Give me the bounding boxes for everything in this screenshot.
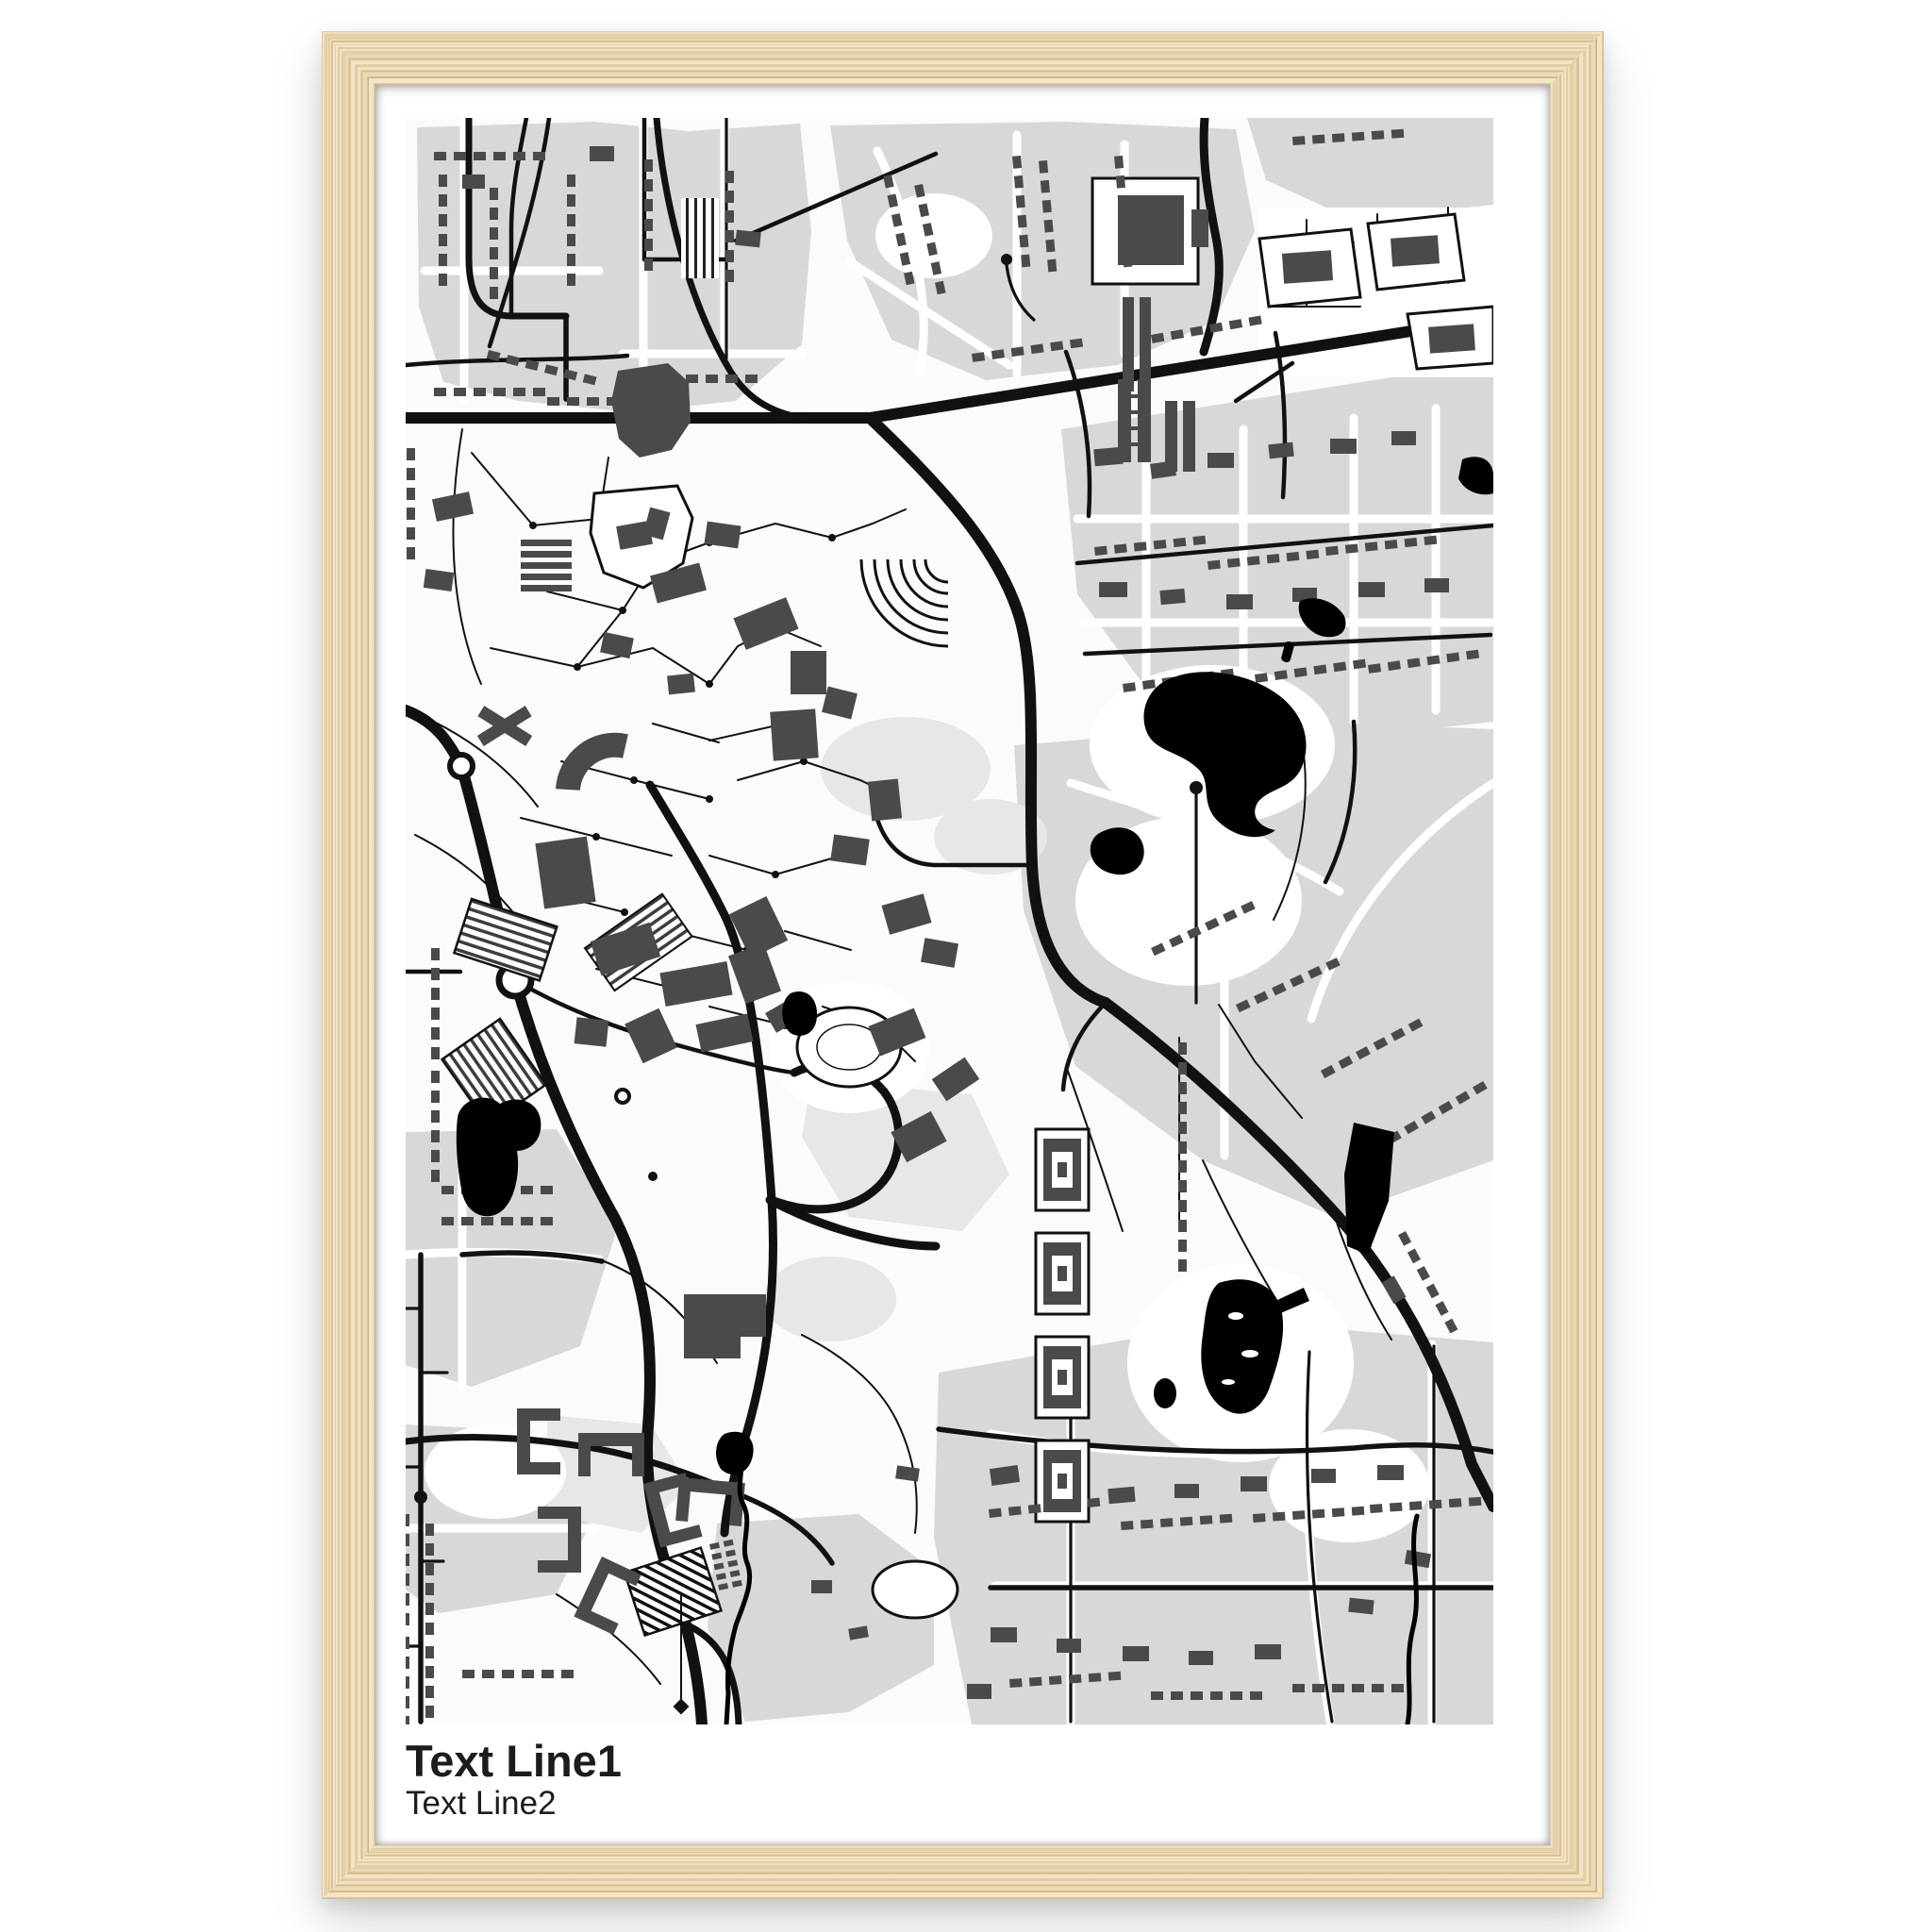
frame-bottom bbox=[322, 1845, 1604, 1899]
picture-frame: Text Line1 Text Line2 bbox=[322, 31, 1604, 1899]
poster-title: Text Line1 bbox=[406, 1738, 622, 1784]
page: { "poster": { "title": "Text Line1", "su… bbox=[0, 0, 1932, 1932]
poster-caption: Text Line1 Text Line2 bbox=[406, 1738, 622, 1823]
poster-mat: Text Line1 Text Line2 bbox=[375, 85, 1550, 1845]
frame-top bbox=[322, 31, 1604, 85]
frame-left bbox=[322, 31, 375, 1899]
city-map bbox=[406, 118, 1493, 1724]
poster-subtitle: Text Line2 bbox=[406, 1786, 622, 1823]
frame-right bbox=[1550, 31, 1604, 1899]
